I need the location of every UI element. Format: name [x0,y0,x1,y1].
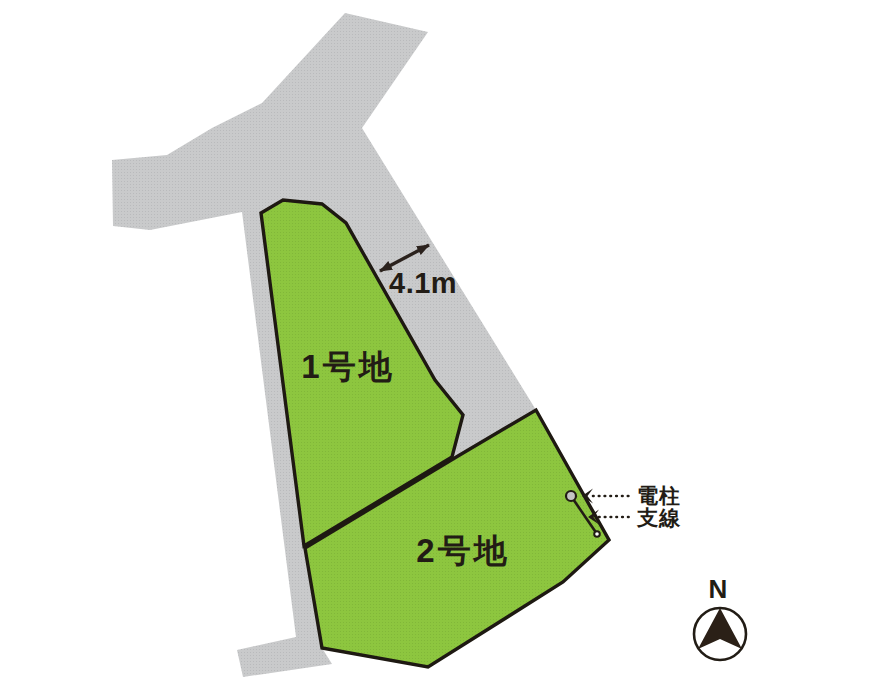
lot-1-label: 1号地 [301,348,394,385]
site-plan-svg: 1号地 2号地 4.1m 電柱 支線 N [0,0,875,700]
guy-wire-label: 支線 [636,506,681,529]
utility-pole-label: 電柱 [637,484,681,507]
land-plot-diagram: 1号地 2号地 4.1m 電柱 支線 N [0,0,875,700]
north-label: N [709,574,728,604]
dimension-label: 4.1m [389,267,457,299]
lot-2-label: 2号地 [416,532,509,569]
guy-wire-anchor [594,531,600,537]
compass: N [694,574,746,660]
utility-pole-leader [582,489,632,504]
utility-pole-marker [566,491,576,501]
